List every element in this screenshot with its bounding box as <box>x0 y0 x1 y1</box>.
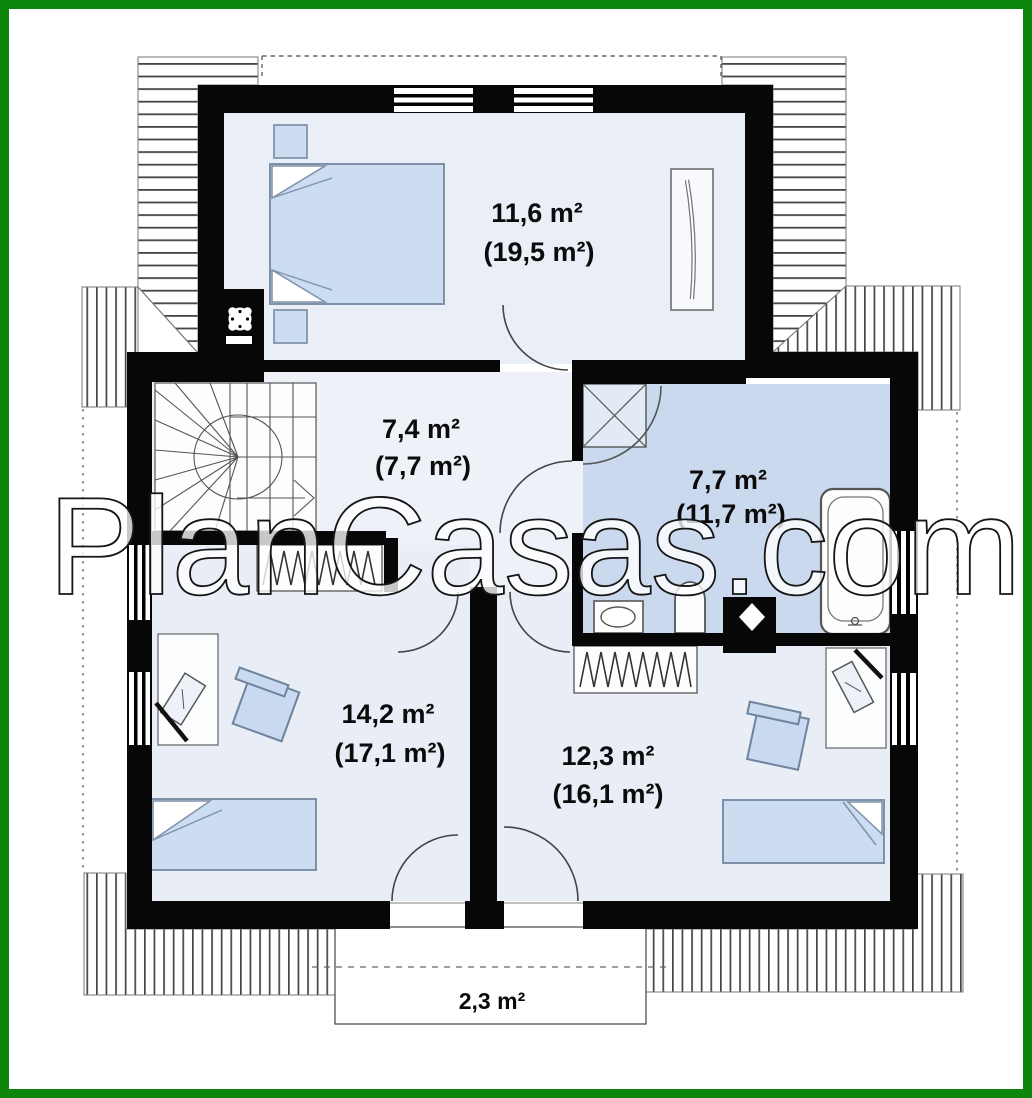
svg-text:PlanCasas.com: PlanCasas.com <box>48 469 1021 624</box>
svg-text:12,3 m²: 12,3 m² <box>561 741 654 771</box>
svg-text:(16,1 m²): (16,1 m²) <box>552 779 663 809</box>
svg-text:(19,5 m²): (19,5 m²) <box>483 237 594 267</box>
svg-text:14,2 m²: 14,2 m² <box>341 699 434 729</box>
svg-text:(17,1 m²): (17,1 m²) <box>334 738 445 768</box>
svg-text:7,4 m²: 7,4 m² <box>382 414 460 444</box>
svg-text:2,3 m²: 2,3 m² <box>459 988 526 1014</box>
svg-text:11,6 m²: 11,6 m² <box>491 198 583 228</box>
